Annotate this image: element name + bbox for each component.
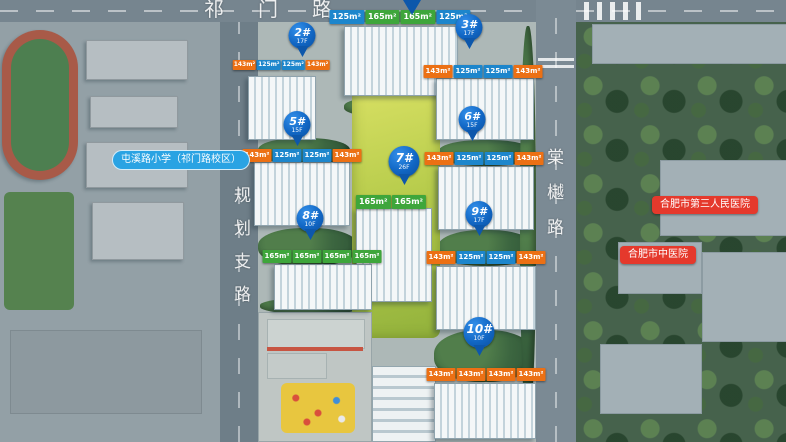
kindergarten-roof bbox=[267, 319, 365, 349]
unit-tags-building-3: 143m² 125m² 125m² 143m² bbox=[424, 65, 543, 78]
building-pin-9[interactable]: 9# 17F bbox=[466, 201, 493, 242]
unit-tag: 143m² bbox=[427, 251, 456, 264]
building-number: 8# bbox=[302, 210, 317, 221]
unit-tag: 165m² bbox=[352, 250, 381, 263]
building-number: 3# bbox=[461, 19, 476, 30]
poi-hospital-3rd-peoples-label[interactable]: 合肥市第三人民医院 bbox=[652, 196, 758, 214]
kindergarten-roof-accent bbox=[267, 347, 363, 351]
east-lot bbox=[702, 252, 786, 342]
unit-tag: 143m² bbox=[427, 368, 456, 381]
pin-tail-icon bbox=[463, 38, 475, 55]
crosswalk bbox=[584, 2, 648, 20]
unit-tag: 165m² bbox=[365, 10, 400, 24]
unit-tag: 143m² bbox=[233, 60, 256, 70]
unit-tags-building-8: 165m² 165m² 165m² 165m² bbox=[263, 250, 382, 263]
building-pin-6[interactable]: 6# 15F bbox=[459, 106, 486, 147]
running-track bbox=[2, 30, 78, 180]
building-number: 5# bbox=[289, 116, 304, 127]
building-pin-2[interactable]: 2# 17F bbox=[289, 22, 316, 63]
unit-tag: 165m² bbox=[263, 250, 292, 263]
unit-tag: 143m² bbox=[514, 152, 543, 165]
building-number: 7# bbox=[396, 152, 413, 164]
crosswalk bbox=[538, 54, 574, 68]
unit-tag: 125m² bbox=[455, 152, 484, 165]
pin-head-icon: 6# 15F bbox=[459, 106, 486, 133]
east-lot bbox=[592, 24, 786, 64]
unit-tag: 125m² bbox=[257, 60, 280, 70]
pin-head-icon: 9# 17F bbox=[466, 201, 493, 228]
pin-head-icon: 2# 17F bbox=[289, 22, 316, 49]
school-building bbox=[90, 96, 178, 128]
unit-tag: 143m² bbox=[487, 368, 516, 381]
pin-tail-icon bbox=[473, 225, 485, 242]
unit-tags-building-1: 125m² 165m² 165m² 125m² bbox=[329, 10, 470, 24]
unit-tag: 165m² bbox=[392, 195, 427, 209]
unit-tag: 143m² bbox=[516, 251, 545, 264]
unit-tag: 143m² bbox=[457, 368, 486, 381]
unit-tag: 143m² bbox=[424, 65, 453, 78]
unit-tag: 125m² bbox=[487, 251, 516, 264]
pin-head-icon: 10# 10F bbox=[464, 317, 495, 348]
road-label-east: 棠樾路 bbox=[541, 148, 566, 253]
unit-tag: 143m² bbox=[513, 65, 542, 78]
building-floors: 17F bbox=[296, 39, 307, 45]
unit-tag: 143m² bbox=[332, 149, 361, 162]
sports-field bbox=[4, 192, 74, 310]
pin-tip-icon bbox=[403, 0, 421, 24]
unit-tags-building-10: 143m² 143m² 143m² 143m² bbox=[427, 368, 546, 381]
pin-head-icon: 8# 10F bbox=[297, 205, 324, 232]
building-floors: 10F bbox=[304, 222, 315, 228]
building-pin-7[interactable]: 7# 26F bbox=[389, 146, 420, 191]
pin-head-icon: 3# 17F bbox=[456, 14, 483, 41]
pin-head-icon: 7# 26F bbox=[389, 146, 420, 177]
building-floors: 26F bbox=[398, 165, 409, 171]
building-footprint-8 bbox=[274, 264, 372, 310]
building-pin-3[interactable]: 3# 17F bbox=[456, 14, 483, 55]
unit-tags-building-7: 165m² 165m² bbox=[356, 195, 426, 209]
parking-lot bbox=[10, 330, 202, 414]
building-floors: 17F bbox=[473, 218, 484, 224]
pin-tail-icon bbox=[304, 229, 316, 246]
school-building bbox=[92, 202, 184, 260]
unit-tag: 125m² bbox=[329, 10, 364, 24]
kindergarten-roof bbox=[267, 353, 327, 379]
poi-tcm-hospital-label[interactable]: 合肥市中医院 bbox=[620, 246, 696, 264]
site-plan-aerial: 祁门路 规划支路 棠樾路 125m² 165m² 165m² 125m² 143… bbox=[0, 0, 786, 442]
unit-tag: 165m² bbox=[293, 250, 322, 263]
building-pin-10[interactable]: 10# 10F bbox=[464, 317, 495, 362]
unit-tags-building-9: 143m² 125m² 125m² 143m² bbox=[427, 251, 546, 264]
building-number: 2# bbox=[294, 27, 309, 38]
sports-field bbox=[11, 39, 69, 171]
building-floors: 15F bbox=[466, 123, 477, 129]
poi-school-label[interactable]: 屯溪路小学（祁门路校区） bbox=[112, 150, 250, 170]
pin-head-icon: 5# 15F bbox=[284, 111, 311, 138]
building-floors: 15F bbox=[291, 128, 302, 134]
school-building bbox=[86, 40, 188, 80]
unit-tag: 165m² bbox=[323, 250, 352, 263]
building-pin-5[interactable]: 5# 15F bbox=[284, 111, 311, 152]
building-floors: 17F bbox=[463, 31, 474, 37]
building-number: 9# bbox=[471, 206, 486, 217]
building-pin-8[interactable]: 8# 10F bbox=[297, 205, 324, 246]
unit-tags-building-6: 143m² 125m² 125m² 143m² bbox=[425, 152, 544, 165]
unit-tag: 165m² bbox=[356, 195, 391, 209]
kindergarten bbox=[258, 312, 372, 442]
pin-tail-icon bbox=[466, 130, 478, 147]
building-floors: 10F bbox=[473, 336, 484, 342]
pin-tail-icon bbox=[398, 174, 410, 191]
east-lot bbox=[600, 344, 702, 414]
unit-tag: 125m² bbox=[485, 152, 514, 165]
unit-tag: 125m² bbox=[454, 65, 483, 78]
unit-tag: 125m² bbox=[484, 65, 513, 78]
building-footprint-10 bbox=[434, 383, 536, 439]
pin-tail-icon bbox=[296, 46, 308, 63]
road-label-west: 规划支路 bbox=[228, 186, 253, 318]
building-number: 6# bbox=[464, 111, 479, 122]
unit-tag: 125m² bbox=[457, 251, 486, 264]
unit-tag: 143m² bbox=[516, 368, 545, 381]
pin-tail-icon bbox=[473, 345, 485, 362]
pin-tail-icon bbox=[291, 135, 303, 152]
playground bbox=[281, 383, 355, 433]
building-number: 10# bbox=[466, 323, 491, 335]
unit-tag: 143m² bbox=[425, 152, 454, 165]
